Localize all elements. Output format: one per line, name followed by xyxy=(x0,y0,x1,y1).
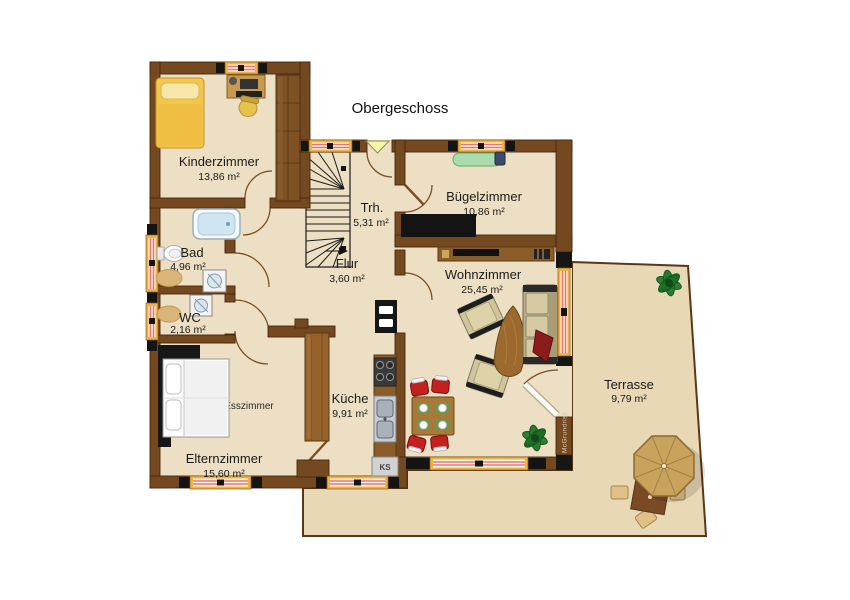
iron-icon xyxy=(495,152,505,165)
window-post xyxy=(556,356,572,366)
window-post xyxy=(556,455,572,470)
room-name: Terrasse xyxy=(604,377,654,392)
watermark: McGrundriss xyxy=(562,411,569,453)
ironing-board-icon xyxy=(453,153,501,166)
window-icon xyxy=(448,140,515,152)
room-name: Kinderzimmer xyxy=(179,154,260,169)
room-area: 25,45 m² xyxy=(461,284,503,296)
window-icon xyxy=(146,293,158,351)
window-icon xyxy=(301,140,360,152)
window-icon xyxy=(146,224,158,303)
page-title: Obergeschoss xyxy=(352,100,449,117)
sofa-icon xyxy=(523,285,557,364)
window-icon xyxy=(316,476,399,489)
stove-icon xyxy=(374,358,396,386)
room-area: 9,91 m² xyxy=(332,408,368,420)
room-area: 5,31 m² xyxy=(353,217,389,229)
fridge-icon: KS xyxy=(372,457,398,476)
room-name: Flur xyxy=(336,256,359,271)
kitchen-sink-icon xyxy=(374,396,396,442)
desk-icon xyxy=(227,75,265,98)
dining-chair-icon xyxy=(430,435,448,452)
fridge-label: KS xyxy=(379,463,391,472)
room-name: Esszimmer xyxy=(224,401,274,412)
room-area: 13,86 m² xyxy=(198,171,240,183)
window-icon xyxy=(406,457,546,470)
bathtub-icon xyxy=(193,209,240,239)
wardrobe-icon xyxy=(305,333,329,441)
room-area: 4,96 m² xyxy=(170,261,206,273)
floorplan-page: Terrasse 9,79 m² xyxy=(0,0,850,600)
floorplan-drawing: Terrasse 9,79 m² xyxy=(0,0,850,600)
tv-sideboard-icon xyxy=(438,247,554,261)
room-name: WC xyxy=(179,310,201,325)
terrace-chair-icon xyxy=(611,486,628,499)
window-icon xyxy=(558,268,570,356)
stairs-icon xyxy=(304,149,350,267)
window-icon xyxy=(216,62,267,74)
room-area: 3,60 m² xyxy=(329,273,365,285)
room-area: 10,86 m² xyxy=(463,206,505,218)
room-name: Bügelzimmer xyxy=(446,189,523,204)
room-area: 15,60 m² xyxy=(203,468,245,480)
chimney-icon xyxy=(375,300,397,333)
room-name: Trh. xyxy=(361,200,384,215)
double-bed-icon xyxy=(163,359,229,437)
rug-icon xyxy=(157,306,181,322)
window-post xyxy=(556,252,572,268)
room-name: Elternzimmer xyxy=(186,451,263,466)
room-name: Küche xyxy=(332,391,369,406)
room-area: 9,79 m² xyxy=(611,393,647,405)
bed-icon xyxy=(156,78,204,148)
room-name: Bad xyxy=(180,245,203,260)
washing-machine-icon xyxy=(203,270,226,292)
wardrobe-icon xyxy=(276,75,300,201)
room-area: 2,16 m² xyxy=(170,324,206,336)
room-name: Wohnzimmer xyxy=(445,267,522,282)
